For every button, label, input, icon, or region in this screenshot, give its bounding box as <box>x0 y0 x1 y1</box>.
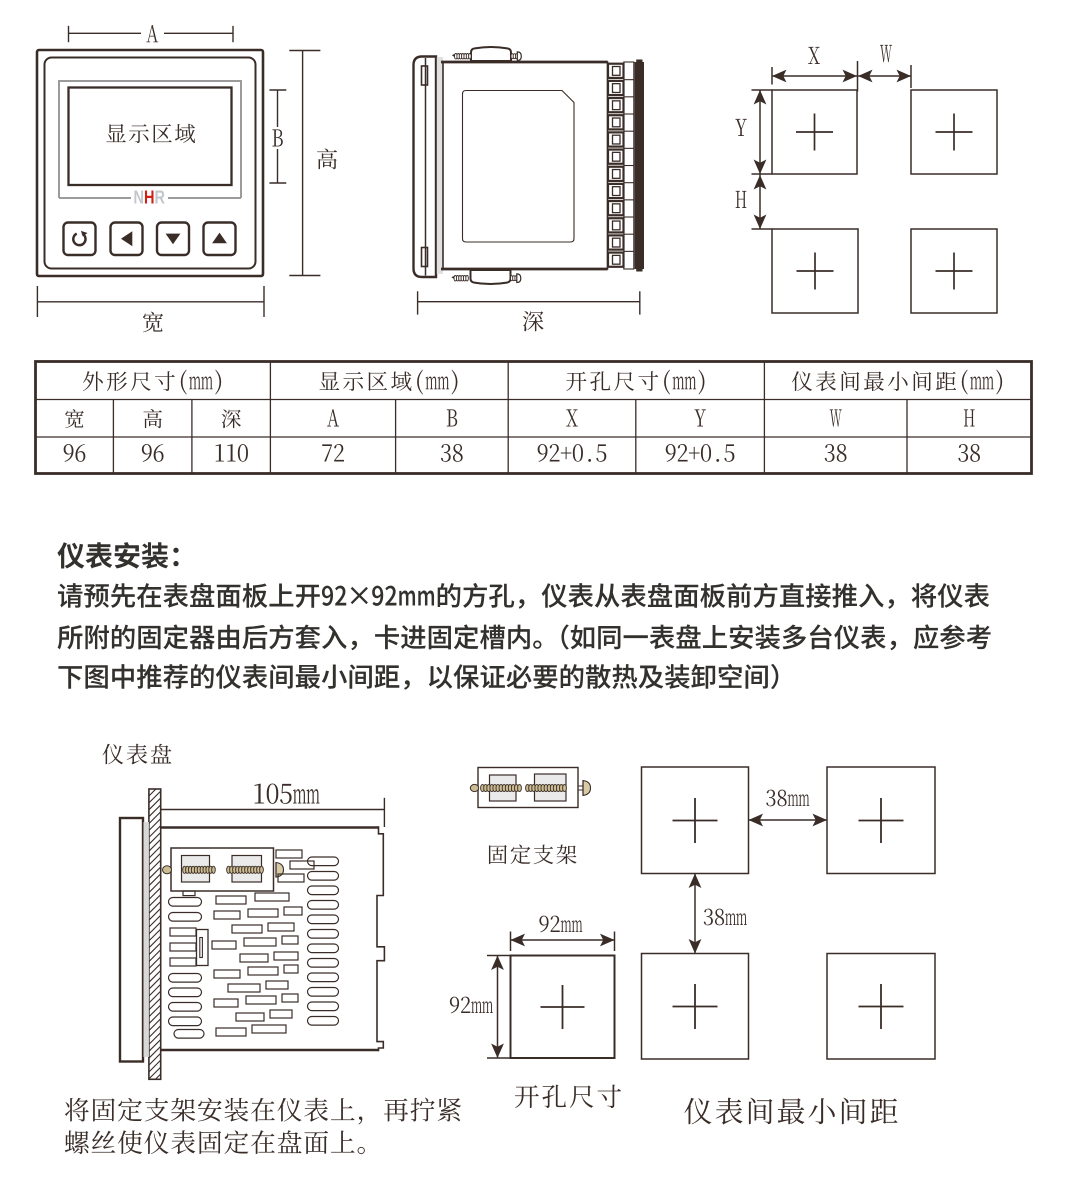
svg-text:NHR: NHR <box>134 187 166 208</box>
